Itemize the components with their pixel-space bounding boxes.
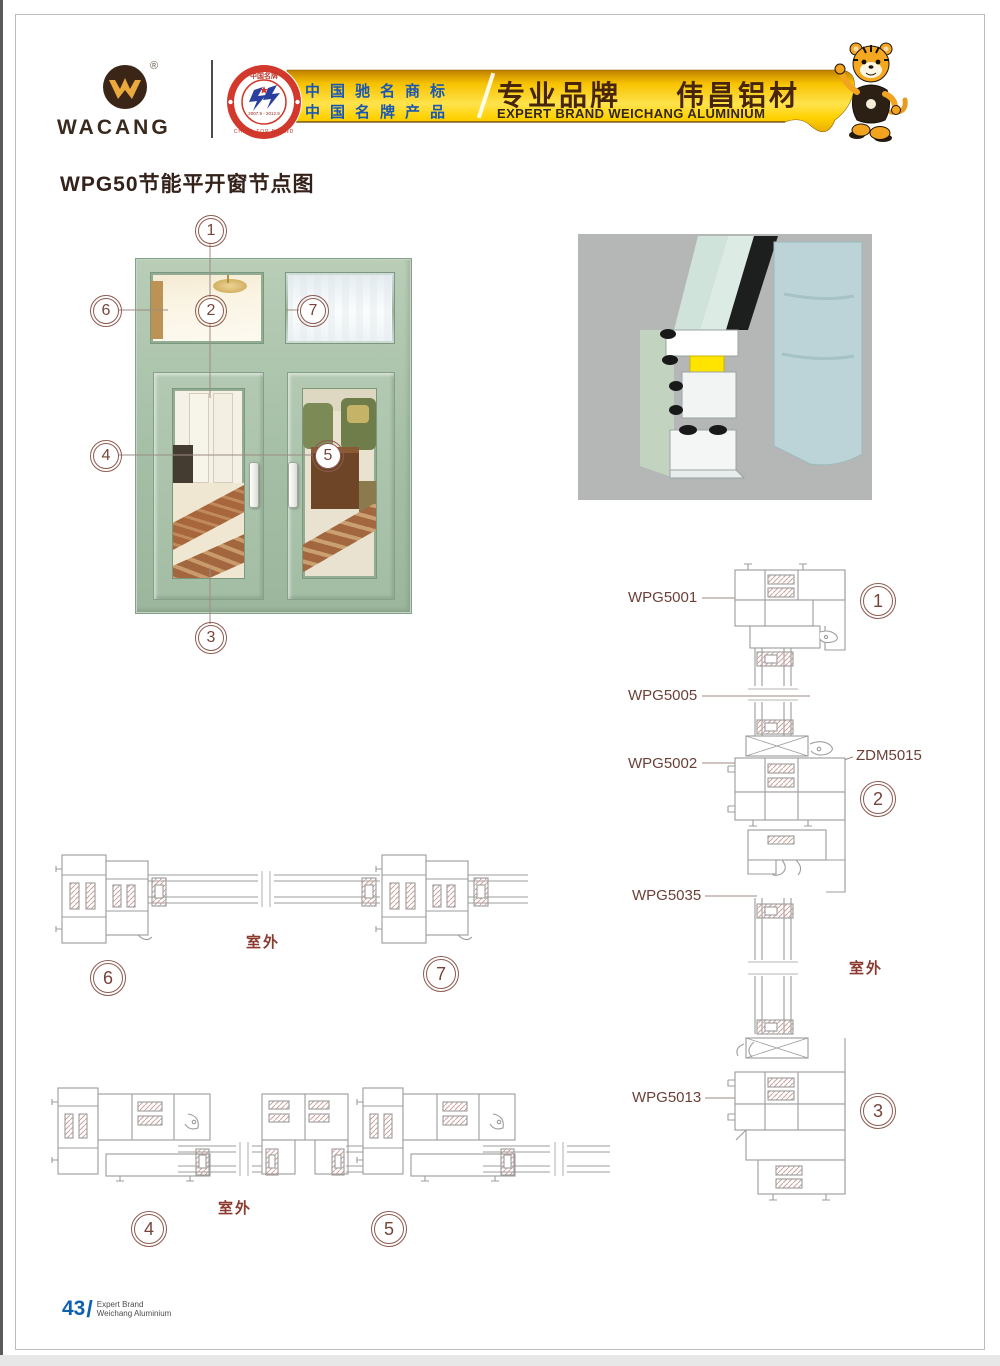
callout-number: 4 [144,1219,154,1240]
callout-section-1: 1 [863,586,893,616]
label-wpg5002: WPG5002 [628,755,697,772]
callout-window-4: 4 [93,443,119,469]
callout-number: 3 [873,1101,883,1122]
callout-number: 1 [207,222,216,240]
callout-section-7: 7 [426,959,456,989]
callout-section-2: 2 [863,784,893,814]
callout-number: 4 [102,447,111,465]
scan-edge [0,0,3,1366]
registered-mark: ® [150,60,158,72]
page-number: 43 [62,1298,85,1320]
label-zdm5015: ZDM5015 [856,747,922,764]
page-bottom-band [0,1355,1000,1366]
callout-number: 2 [207,302,216,320]
window-callout-lines [90,216,440,652]
callout-number: 7 [436,964,446,985]
callout-window-1: 1 [198,218,224,244]
callout-number: 6 [102,302,111,320]
callout-window-3: 3 [198,625,224,651]
callout-number: 7 [309,302,318,320]
badge-top-text: 中国名牌 [250,71,278,80]
label-wpg5035: WPG5035 [632,887,701,904]
horizontal-section-diagram-6-7 [50,845,530,950]
footer-line-1: Expert Brand [97,1300,172,1309]
callout-number: 6 [103,968,113,989]
label-wpg5013: WPG5013 [632,1089,701,1106]
callout-number: 1 [873,591,883,612]
callout-section-5: 5 [374,1214,404,1244]
callout-number: 2 [873,789,883,810]
callout-section-3: 3 [863,1096,893,1126]
wacang-logo-icon [101,63,149,111]
brand-wordmark: WACANG [57,116,171,140]
callout-window-5: 5 [315,443,341,469]
tiger-mascot-icon [833,38,909,142]
label-outdoor-right: 室外 [849,957,883,978]
callout-number: 5 [324,447,333,465]
label-wpg5001: WPG5001 [628,589,697,606]
footer-line-2: Weichang Aluminium [97,1309,172,1318]
banner-claim-1: 中国驰名商标 [305,80,455,101]
callout-section-6: 6 [93,963,123,993]
catalog-page: ® WACANG 中国驰名商标 中国名牌产品 专业品牌 伟昌铝材 EXPERT … [0,0,1000,1366]
callout-number: 3 [207,629,216,647]
callout-window-2: 2 [198,298,224,324]
label-outdoor-row67: 室外 [246,931,280,952]
page-footer: 43 / Expert Brand Weichang Aluminium [62,1298,171,1320]
horizontal-section-diagram-4-5 [50,1080,630,1195]
callout-window-7: 7 [300,298,326,324]
profile-3d-render [578,234,872,500]
badge-dates: 2007.9 - 2012.9 [248,111,280,116]
page-number-slash: / [86,1298,92,1320]
label-wpg5005: WPG5005 [628,687,697,704]
banner-slogan-en: EXPERT BRAND WEICHANG ALUMINIUM [497,106,765,121]
china-top-brand-badge-icon: 中国名牌 2007.9 - 2012.9 CHINA TOP BRAND [224,60,304,144]
callout-section-4: 4 [134,1214,164,1244]
callout-window-6: 6 [93,298,119,324]
page-title: WPG50节能平开窗节点图 [60,168,315,198]
callout-number: 5 [384,1219,394,1240]
banner-claim-2: 中国名牌产品 [305,101,455,122]
label-outdoor-row45: 室外 [218,1197,252,1218]
badge-bottom-text: CHINA TOP BRAND [234,129,295,135]
header-divider [211,60,213,138]
